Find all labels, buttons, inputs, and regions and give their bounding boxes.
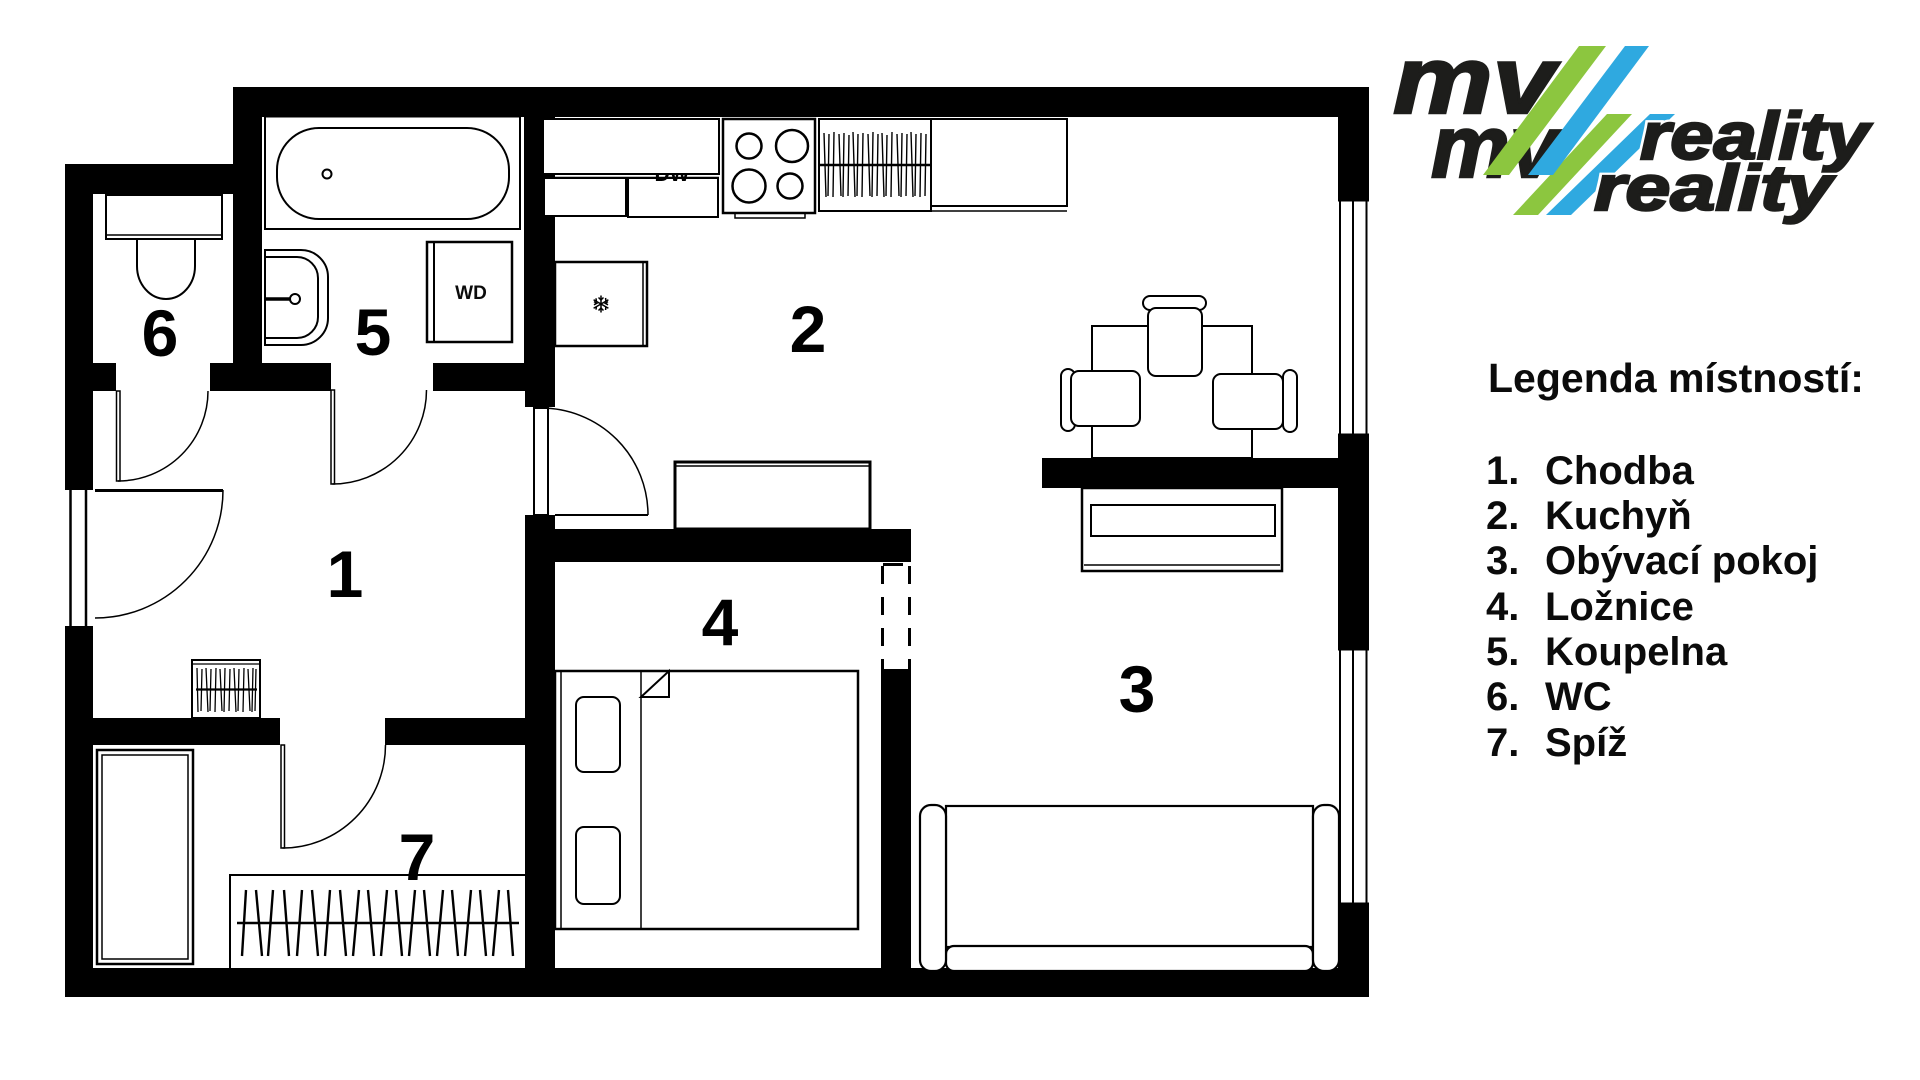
svg-text:4: 4 (702, 585, 739, 659)
svg-text:6.: 6. (1486, 675, 1519, 719)
svg-text:3: 3 (1119, 652, 1156, 726)
svg-text:7: 7 (399, 820, 436, 894)
svg-text:3.: 3. (1486, 539, 1519, 583)
svg-text:WC: WC (1545, 675, 1612, 719)
svg-text:reality: reality (1594, 152, 1836, 224)
svg-text:Spíž: Spíž (1545, 721, 1627, 765)
svg-text:Chodba: Chodba (1545, 449, 1695, 493)
svg-text:Kuchyň: Kuchyň (1545, 494, 1692, 538)
svg-text:5: 5 (355, 295, 392, 369)
svg-text:4.: 4. (1486, 585, 1519, 629)
svg-text:7.: 7. (1486, 721, 1519, 765)
svg-text:Obývací pokoj: Obývací pokoj (1545, 539, 1818, 583)
svg-text:WD: WD (455, 283, 487, 304)
svg-text:5.: 5. (1486, 630, 1519, 674)
svg-text:2: 2 (790, 292, 827, 366)
svg-text:1.: 1. (1486, 449, 1519, 493)
svg-text:Legenda místností:: Legenda místností: (1488, 355, 1864, 401)
svg-text:6: 6 (142, 296, 179, 370)
svg-text:2.: 2. (1486, 494, 1519, 538)
svg-text:Koupelna: Koupelna (1545, 630, 1728, 674)
svg-text:1: 1 (327, 537, 364, 611)
svg-text:Ložnice: Ložnice (1545, 585, 1694, 629)
